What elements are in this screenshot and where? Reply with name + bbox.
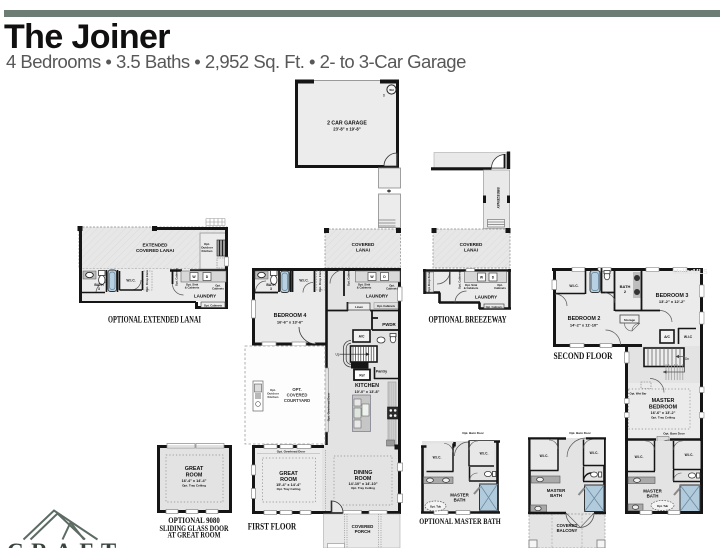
- svg-text:Opt. Tray Ceiling: Opt. Tray Ceiling: [277, 487, 301, 491]
- svg-text:BEDROOM 4: BEDROOM 4: [274, 313, 307, 319]
- svg-text:3: 3: [98, 287, 100, 291]
- svg-text:A/C: A/C: [359, 335, 365, 339]
- svg-text:& Cabinets: & Cabinets: [357, 286, 372, 290]
- svg-text:Opt. Barn Door: Opt. Barn Door: [462, 431, 484, 435]
- svg-text:& Cabinets: & Cabinets: [464, 286, 479, 290]
- svg-text:BEDROOM 2: BEDROOM 2: [568, 316, 601, 322]
- svg-text:3: 3: [270, 287, 272, 291]
- svg-text:LAUNDRY: LAUNDRY: [475, 295, 497, 300]
- svg-text:Opt. Barn Door: Opt. Barn Door: [663, 432, 685, 436]
- svg-text:13'-2" x 12'-2": 13'-2" x 12'-2": [659, 299, 685, 304]
- svg-text:Storage: Storage: [624, 318, 636, 322]
- svg-text:16'-4" x 14'-4": 16'-4" x 14'-4": [182, 479, 207, 483]
- svg-text:MASTER: MASTER: [652, 398, 675, 404]
- svg-text:BREEZEWAY: BREEZEWAY: [496, 187, 500, 209]
- svg-text:Opt. Barn Door: Opt. Barn Door: [569, 431, 591, 435]
- svg-text:W.I.C.: W.I.C.: [590, 451, 599, 455]
- svg-text:Cabinets: Cabinets: [386, 287, 398, 291]
- svg-text:FIRST FLOOR: FIRST FLOOR: [248, 523, 297, 533]
- svg-text:W.I.C.: W.I.C.: [635, 455, 644, 459]
- svg-text:W.I.C: W.I.C: [684, 335, 693, 339]
- svg-text:stellarMLS: stellarMLS: [672, 269, 708, 276]
- svg-text:Dn: Dn: [685, 357, 689, 361]
- svg-text:Opt. Tray Ceiling: Opt. Tray Ceiling: [351, 486, 375, 490]
- svg-text:10'-0" x 13'-8": 10'-0" x 13'-8": [355, 390, 380, 394]
- svg-text:Opt. Overhead Door: Opt. Overhead Door: [327, 392, 331, 421]
- svg-text:OPTIONAL BREEZEWAY: OPTIONAL BREEZEWAY: [429, 315, 507, 325]
- svg-text:LAUNDRY: LAUNDRY: [194, 294, 216, 299]
- svg-text:Opt. Tub: Opt. Tub: [430, 505, 442, 509]
- svg-text:WH: WH: [389, 88, 393, 92]
- svg-text:BATH: BATH: [454, 498, 466, 503]
- svg-text:Opt. Drop Zone: Opt. Drop Zone: [318, 270, 322, 292]
- svg-text:EXTENDED: EXTENDED: [142, 243, 168, 248]
- svg-text:23'-8" x 19'-8": 23'-8" x 19'-8": [333, 127, 360, 132]
- svg-text:LANAI: LANAI: [464, 248, 478, 253]
- svg-text:COVERED: COVERED: [460, 242, 483, 247]
- svg-text:SECOND FLOOR: SECOND FLOOR: [554, 352, 613, 362]
- svg-text:OPTIONAL EXTENDED LANAI: OPTIONAL EXTENDED LANAI: [108, 315, 201, 325]
- svg-text:BATH: BATH: [550, 493, 562, 498]
- svg-text:GREAT: GREAT: [185, 466, 204, 472]
- svg-text:COVERED LANAI: COVERED LANAI: [136, 248, 174, 253]
- svg-text:Opt. Cabinets: Opt. Cabinets: [347, 267, 351, 286]
- svg-text:BALCONY: BALCONY: [557, 528, 578, 533]
- svg-text:16'-6" x 13'-6": 16'-6" x 13'-6": [277, 320, 303, 325]
- svg-text:Opt. Tray Ceiling: Opt. Tray Ceiling: [651, 416, 675, 420]
- svg-text:OPT.: OPT.: [292, 387, 301, 392]
- svg-text:Opt. Drop Zone: Opt. Drop Zone: [145, 270, 149, 292]
- svg-text:ROOM: ROOM: [186, 473, 203, 479]
- svg-text:Linen: Linen: [355, 305, 363, 309]
- svg-text:16'-6" x 13'-2": 16'-6" x 13'-2": [651, 411, 676, 415]
- svg-text:W.I.C.: W.I.C.: [569, 284, 578, 288]
- svg-text:Kitchen: Kitchen: [201, 249, 212, 253]
- svg-text:PORCH: PORCH: [355, 529, 371, 534]
- svg-text:W.I.C.: W.I.C.: [433, 456, 442, 460]
- svg-text:& Cabinets: & Cabinets: [185, 286, 200, 290]
- svg-text:Kitchen: Kitchen: [267, 395, 278, 399]
- svg-text:W.I.C.: W.I.C.: [299, 279, 308, 283]
- svg-text:Opt. Drop Zone: Opt. Drop Zone: [427, 271, 431, 292]
- svg-text:COURTYARD: COURTYARD: [284, 398, 310, 403]
- svg-text:PWDR: PWDR: [382, 322, 396, 327]
- svg-text:W.I.C.: W.I.C.: [480, 452, 489, 456]
- svg-text:W.I.C.: W.I.C.: [685, 453, 694, 457]
- svg-text:W.I.C.: W.I.C.: [540, 454, 549, 458]
- svg-text:Opt. Cabinets: Opt. Cabinets: [458, 270, 462, 289]
- svg-text:Opt. Tub: Opt. Tub: [657, 504, 669, 508]
- svg-text:Up: Up: [335, 353, 339, 357]
- svg-text:BEDROOM: BEDROOM: [649, 405, 678, 411]
- svg-text:A/C: A/C: [664, 335, 670, 339]
- svg-text:14'-2" x 11'-10": 14'-2" x 11'-10": [570, 323, 598, 328]
- svg-text:CRAFT: CRAFT: [7, 539, 124, 548]
- svg-text:Opt. Cabinets: Opt. Cabinets: [204, 303, 223, 307]
- svg-text:OPTIONAL MASTER BATH: OPTIONAL MASTER BATH: [419, 516, 501, 526]
- svg-text:Opt. Cabinets: Opt. Cabinets: [486, 305, 503, 309]
- svg-text:COVERED: COVERED: [287, 393, 308, 398]
- svg-text:BATH: BATH: [647, 494, 659, 499]
- svg-text:LAUNDRY: LAUNDRY: [366, 294, 388, 299]
- svg-text:COVERED: COVERED: [352, 242, 375, 247]
- svg-text:Opt. Cabinets: Opt. Cabinets: [175, 267, 179, 286]
- svg-text:Opt. Wet Bar: Opt. Wet Bar: [630, 392, 648, 396]
- svg-text:Opt. Tray Ceiling: Opt. Tray Ceiling: [182, 484, 206, 488]
- svg-text:Opt. Overhead Door: Opt. Overhead Door: [277, 450, 306, 454]
- svg-text:KITCHEN: KITCHEN: [355, 383, 379, 389]
- svg-text:Opt. Cabinets: Opt. Cabinets: [377, 304, 396, 308]
- svg-text:Cabinets: Cabinets: [494, 286, 506, 290]
- svg-text:Pantry: Pantry: [376, 370, 387, 374]
- svg-text:Cabinets: Cabinets: [212, 287, 224, 291]
- svg-text:W.I.C.: W.I.C.: [126, 279, 135, 283]
- svg-text:LANAI: LANAI: [356, 248, 370, 253]
- svg-text:AT GREAT ROOM: AT GREAT ROOM: [168, 530, 221, 539]
